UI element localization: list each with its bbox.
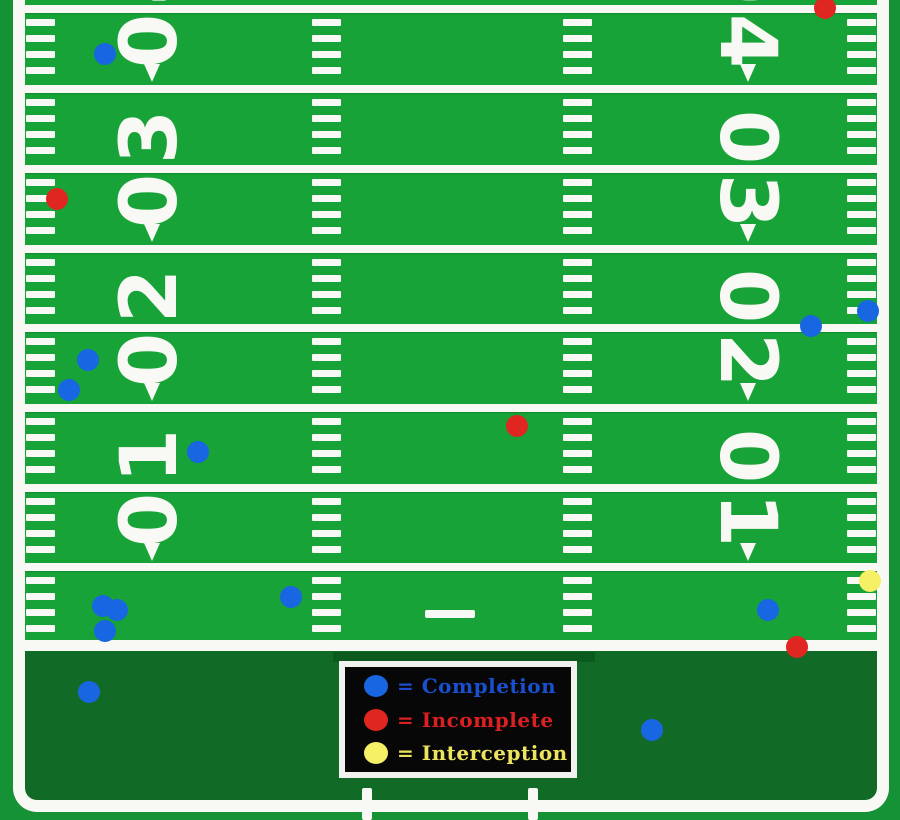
hash-mark xyxy=(563,131,592,138)
hash-mark xyxy=(563,498,592,505)
hash-mark xyxy=(312,450,341,457)
hash-mark xyxy=(847,386,876,393)
hash-mark xyxy=(563,195,592,202)
hash-mark xyxy=(563,418,592,425)
direction-arrow-icon xyxy=(144,383,160,401)
hash-mark xyxy=(847,211,876,218)
hash-mark xyxy=(312,51,341,58)
hash-mark xyxy=(563,179,592,186)
hash-mark xyxy=(563,307,592,314)
hash-mark xyxy=(847,338,876,345)
hash-mark xyxy=(312,211,341,218)
legend-row-completion: = Completion xyxy=(345,671,571,701)
hash-mark xyxy=(26,450,55,457)
hash-mark xyxy=(563,434,592,441)
hash-mark xyxy=(312,530,341,537)
hash-mark xyxy=(563,259,592,266)
hash-mark xyxy=(26,514,55,521)
hash-mark xyxy=(26,354,55,361)
hash-mark xyxy=(26,418,55,425)
pass-dot-completion xyxy=(106,599,128,621)
direction-arrow-icon xyxy=(740,383,756,401)
direction-arrow-icon xyxy=(144,64,160,82)
hash-mark xyxy=(312,179,341,186)
pass-dot-completion xyxy=(78,681,100,703)
completion-dot-icon xyxy=(364,675,388,697)
legend-row-interception: = Interception xyxy=(345,738,571,768)
hash-mark xyxy=(312,131,341,138)
hash-mark xyxy=(26,530,55,537)
pass-dot-completion xyxy=(187,441,209,463)
hash-mark xyxy=(847,51,876,58)
pass-dot-completion xyxy=(641,719,663,741)
hash-mark xyxy=(26,593,55,600)
hash-mark xyxy=(26,99,55,106)
legend-label-incomplete: = Incomplete xyxy=(397,708,554,732)
hash-mark xyxy=(563,593,592,600)
pass-dot-completion xyxy=(94,43,116,65)
hash-mark xyxy=(847,530,876,537)
hash-mark xyxy=(847,291,876,298)
goal-line xyxy=(25,640,877,651)
hash-mark xyxy=(563,354,592,361)
hash-mark xyxy=(563,625,592,632)
hash-mark xyxy=(312,625,341,632)
direction-arrow-icon xyxy=(144,543,160,561)
legend: = Completion = Incomplete = Interception xyxy=(339,661,577,778)
hash-mark xyxy=(312,434,341,441)
hash-mark xyxy=(847,19,876,26)
hash-mark xyxy=(847,99,876,106)
hash-mark xyxy=(312,35,341,42)
hash-mark xyxy=(312,514,341,521)
hash-mark xyxy=(26,370,55,377)
hash-mark xyxy=(563,546,592,553)
hash-mark xyxy=(847,609,876,616)
hash-mark xyxy=(26,227,55,234)
pass-dot-completion xyxy=(857,300,879,322)
hash-mark xyxy=(26,211,55,218)
incomplete-dot-icon xyxy=(364,709,388,731)
pass-dot-interception xyxy=(859,570,881,592)
hash-mark xyxy=(26,179,55,186)
hash-mark xyxy=(563,530,592,537)
pass-dot-completion xyxy=(94,620,116,642)
hash-mark xyxy=(563,211,592,218)
pass-dot-completion xyxy=(757,599,779,621)
hash-mark xyxy=(26,609,55,616)
pass-dot-completion xyxy=(800,315,822,337)
hash-mark xyxy=(312,275,341,282)
hash-mark xyxy=(847,546,876,553)
hash-mark xyxy=(563,370,592,377)
hash-mark xyxy=(312,546,341,553)
hash-mark xyxy=(563,450,592,457)
pass-dot-completion xyxy=(77,349,99,371)
hash-mark xyxy=(312,609,341,616)
hash-mark xyxy=(312,577,341,584)
hash-mark xyxy=(26,131,55,138)
hash-mark xyxy=(563,386,592,393)
legend-label-completion: = Completion xyxy=(397,674,556,698)
hash-mark xyxy=(847,466,876,473)
hash-mark xyxy=(847,418,876,425)
hash-mark xyxy=(563,67,592,74)
hash-mark xyxy=(26,386,55,393)
hash-mark xyxy=(26,338,55,345)
hash-mark xyxy=(847,131,876,138)
hash-mark xyxy=(26,259,55,266)
hash-mark xyxy=(563,514,592,521)
hash-mark xyxy=(847,625,876,632)
hash-mark xyxy=(847,115,876,122)
legend-row-incomplete: = Incomplete xyxy=(345,705,571,735)
hash-mark xyxy=(26,498,55,505)
hash-mark xyxy=(563,115,592,122)
center-field-dash xyxy=(425,610,475,618)
hash-mark xyxy=(26,67,55,74)
interception-dot-icon xyxy=(364,742,388,764)
direction-arrow-icon xyxy=(740,224,756,242)
hash-mark xyxy=(312,307,341,314)
hash-mark xyxy=(312,227,341,234)
hash-mark xyxy=(847,195,876,202)
legend-label-interception: = Interception xyxy=(397,741,568,765)
hash-mark xyxy=(563,338,592,345)
hash-mark xyxy=(563,227,592,234)
hash-mark xyxy=(26,577,55,584)
direction-arrow-icon xyxy=(740,543,756,561)
hash-mark xyxy=(312,466,341,473)
hash-mark xyxy=(312,195,341,202)
hash-mark xyxy=(312,593,341,600)
hash-mark xyxy=(26,51,55,58)
hash-mark xyxy=(847,498,876,505)
hash-mark xyxy=(312,354,341,361)
hash-mark xyxy=(563,147,592,154)
pass-dot-completion xyxy=(280,586,302,608)
hash-mark xyxy=(26,625,55,632)
hash-mark xyxy=(312,370,341,377)
pass-dot-incomplete xyxy=(506,415,528,437)
hash-mark xyxy=(26,35,55,42)
hash-mark xyxy=(847,147,876,154)
hash-mark xyxy=(26,19,55,26)
pass-dot-incomplete xyxy=(46,188,68,210)
hash-mark xyxy=(847,514,876,521)
hash-mark xyxy=(563,51,592,58)
hash-mark xyxy=(563,275,592,282)
hash-mark xyxy=(26,466,55,473)
boundary-tick xyxy=(362,788,372,820)
hash-mark xyxy=(847,179,876,186)
hash-mark xyxy=(563,609,592,616)
hash-mark xyxy=(847,259,876,266)
hash-mark xyxy=(312,19,341,26)
hash-mark xyxy=(563,19,592,26)
direction-arrow-icon xyxy=(144,224,160,242)
hash-mark xyxy=(312,99,341,106)
hash-mark xyxy=(563,291,592,298)
hash-mark xyxy=(26,546,55,553)
hash-mark xyxy=(26,115,55,122)
hash-mark xyxy=(26,147,55,154)
hash-mark xyxy=(563,35,592,42)
hash-mark xyxy=(26,275,55,282)
hash-mark xyxy=(563,466,592,473)
hash-mark xyxy=(312,259,341,266)
hash-mark xyxy=(847,450,876,457)
hash-mark xyxy=(847,354,876,361)
hash-mark xyxy=(847,275,876,282)
hash-mark xyxy=(312,498,341,505)
hash-mark xyxy=(26,307,55,314)
hash-mark xyxy=(847,370,876,377)
hash-mark xyxy=(26,434,55,441)
hash-mark xyxy=(312,418,341,425)
hash-mark xyxy=(312,291,341,298)
hash-mark xyxy=(312,147,341,154)
hash-mark xyxy=(847,593,876,600)
hash-mark xyxy=(312,67,341,74)
hash-mark xyxy=(312,338,341,345)
hash-mark xyxy=(847,434,876,441)
hash-mark xyxy=(847,227,876,234)
pass-dot-incomplete xyxy=(786,636,808,658)
hash-mark xyxy=(563,99,592,106)
hash-mark xyxy=(312,115,341,122)
hash-mark xyxy=(847,35,876,42)
hash-mark xyxy=(312,386,341,393)
football-pass-chart: 4004300320021001 = Completion = Incomple… xyxy=(0,0,900,820)
pass-dot-completion xyxy=(58,379,80,401)
hash-mark xyxy=(26,291,55,298)
hash-mark xyxy=(563,577,592,584)
boundary-tick xyxy=(528,788,538,820)
hash-mark xyxy=(847,67,876,74)
direction-arrow-icon xyxy=(740,64,756,82)
